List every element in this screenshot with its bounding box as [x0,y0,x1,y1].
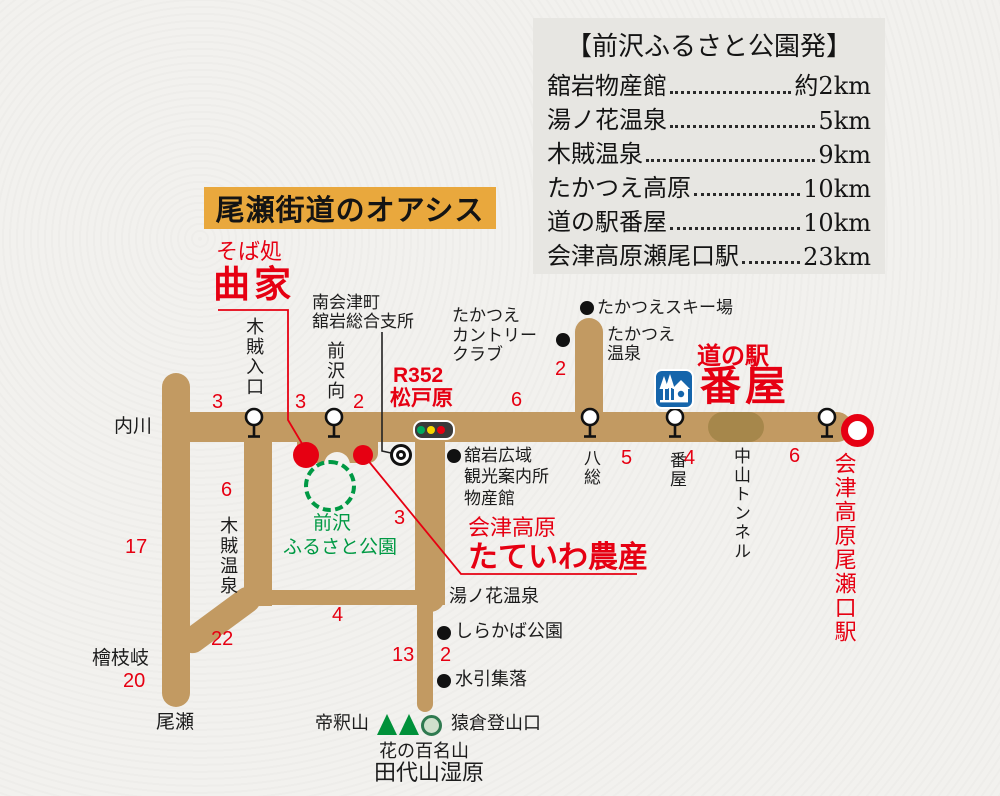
station-ring-icon [841,414,874,447]
dotted-leader [670,107,815,128]
location-dot-magariya [293,442,319,468]
poi-dot-ski-resort [580,301,594,315]
info-center-label: 舘岩広域 観光案内所 物産館 [464,446,549,510]
info-row: 舘岩物産館約2km [547,67,871,101]
info-row-label: 会津高原瀬尾口駅 [547,236,739,271]
country-club-line3: クラブ [452,346,537,366]
info-row-label: 湯ノ花温泉 [547,100,667,135]
tateiwa-nosan-label: たていわ農産 [468,541,648,575]
info-box-title: 【前沢ふるさと公園発】 [547,26,871,63]
country-club-label: たかつえ カントリー クラブ [452,307,537,366]
dotted-leader [742,243,800,264]
info-row: 会津高原瀬尾口駅23km [547,237,871,271]
country-club-line1: たかつえ [452,307,537,327]
distance-hinoemata-south: 20 [123,670,145,693]
town-office-icon [390,444,412,466]
bus-stop-label-hassou: 八総 [580,449,599,487]
info-row: 湯ノ花温泉5km [547,101,871,135]
branch-office-label: 南会津町 舘岩総合支所 [312,294,414,332]
oze-label: 尾瀬 [156,712,194,733]
mountain-icon [377,714,397,735]
location-dot-tateiwa-nosan [353,445,373,465]
park-label-line2: ふるさと公園 [283,537,397,558]
info-row-value: 10km [803,175,871,203]
distance-tunnel-station: 6 [789,445,800,468]
country-club-line2: カントリー [452,327,537,347]
distance-hassou-banya: 5 [621,447,632,470]
dotted-leader [670,209,800,230]
info-row-value: 5km [818,107,871,135]
distance-loop-bottom: 4 [332,604,343,627]
info-center-line3: 物産館 [464,489,549,510]
info-row-label: 道の駅番屋 [547,202,667,237]
info-row-label: 舘岩物産館 [547,66,667,101]
branch-office-line1: 南会津町 [312,294,414,313]
traffic-light-green [417,426,425,434]
distance-hinoemata-north: 17 [125,536,147,559]
michinoeki-icon [654,369,694,413]
hinoemata-label: 檜枝岐 [92,648,149,669]
bus-stop-label-tokusa-iriguchi: 木賊入口 [243,317,263,397]
distance-matsudohara-hassou: 6 [511,389,522,412]
trailhead-circle-icon [421,715,442,736]
bus-stop-icon-tokusa-iriguchi [243,407,265,444]
takatsue-onsen-label: たかつえ 温泉 [607,326,675,364]
taishakuzan-label: 帝釈山 [315,714,369,734]
distance-info-box: 【前沢ふるさと公園発】 舘岩物産館約2km 湯ノ花温泉5km 木賊温泉9km た… [533,18,885,274]
hana-hyakumeizan-label: 花の百名山 [379,742,469,762]
distance-shirakaba-spur: 2 [440,644,451,667]
dotted-leader [670,73,791,94]
distance-yunohana-south: 13 [392,644,414,667]
map-title: 尾瀬街道のオアシス [204,187,496,229]
distance-banya-tunnel: 4 [684,447,695,470]
info-row-value: 23km [803,243,871,271]
info-row-value: 10km [803,209,871,237]
dotted-leader [694,175,800,196]
poi-dot-country-club [556,333,570,347]
distance-tokusa-road: 6 [221,479,232,502]
bus-stop-label-maezawa-mukai: 前沢向 [324,341,344,401]
road-map: 尾瀬街道のオアシス 【前沢ふるさと公園発】 舘岩物産館約2km 湯ノ花温泉5km… [0,0,1000,796]
sarukura-label: 猿倉登山口 [451,714,541,734]
info-row: たかつえ高原10km [547,169,871,203]
distance-maezawa-matsudohara: 2 [353,391,364,414]
info-row: 道の駅番屋10km [547,203,871,237]
michinoeki-banya-label: 番屋 [700,364,790,410]
mountain-icon [399,714,419,735]
park-label-line1: 前沢 [313,513,351,534]
info-row-value: 約2km [794,66,871,101]
traffic-light-yellow [427,426,435,434]
matsudohara-label: 松戸原 [390,386,453,410]
info-row: 木賊温泉9km [547,135,871,169]
info-center-line1: 舘岩広域 [464,446,549,467]
info-row-label: たかつえ高原 [547,168,691,203]
nakayama-tunnel-label: 中山トンネル [730,447,749,561]
distance-tokusa-maezawa: 3 [295,391,306,414]
uchikawa-label: 内川 [114,416,152,437]
bus-stop-icon-ozeguchi [816,407,838,444]
yunohana-onsen-label: 湯ノ花温泉 [449,587,539,607]
traffic-light-icon [413,420,455,440]
bus-stop-icon-maezawa-mukai [323,407,345,444]
station-label: 会津高原尾瀬口駅 [830,452,855,644]
tateiwa-prefix-label: 会津高原 [468,517,556,542]
branch-office-line2: 舘岩総合支所 [312,313,414,332]
bus-stop-icon-hassou [579,407,601,444]
poi-dot-mizuhiki [437,674,451,688]
road-yunohana-south [417,596,433,712]
tashiroyama-label: 田代山湿原 [374,762,484,787]
poi-dot-info-center [447,449,461,463]
route-number-label: R352 [393,364,443,388]
nakayama-tunnel-section [708,412,764,442]
distance-west-of-tokusa: 3 [212,391,223,414]
tokusa-onsen-label: 木賊温泉 [217,516,237,596]
info-row-label: 木賊温泉 [547,134,643,169]
park-area-circle-icon [304,460,356,512]
info-row-value: 9km [818,141,871,169]
distance-tokusa-diagonal: 22 [211,628,233,651]
dotted-leader [646,141,815,162]
takatsue-onsen-line2: 温泉 [607,345,675,364]
ski-resort-label: たかつえスキー場 [597,299,733,318]
road-loop-right [415,412,445,612]
shirakaba-park-label: しらかば公園 [455,622,563,642]
town-office-inner-circle [396,450,406,460]
traffic-light-red [437,426,445,434]
takatsue-onsen-line1: たかつえ [607,326,675,345]
mizuhiki-label: 水引集落 [455,670,527,690]
distance-takatsue-branch: 2 [555,358,566,381]
magariya-label: 曲家 [213,264,295,305]
bus-stop-label-banya: 番屋 [666,451,685,489]
info-center-line2: 観光案内所 [464,467,549,488]
poi-dot-shirakaba [437,626,451,640]
distance-loop-right: 3 [394,507,405,530]
map-title-text: 尾瀬街道のオアシス [216,187,485,229]
